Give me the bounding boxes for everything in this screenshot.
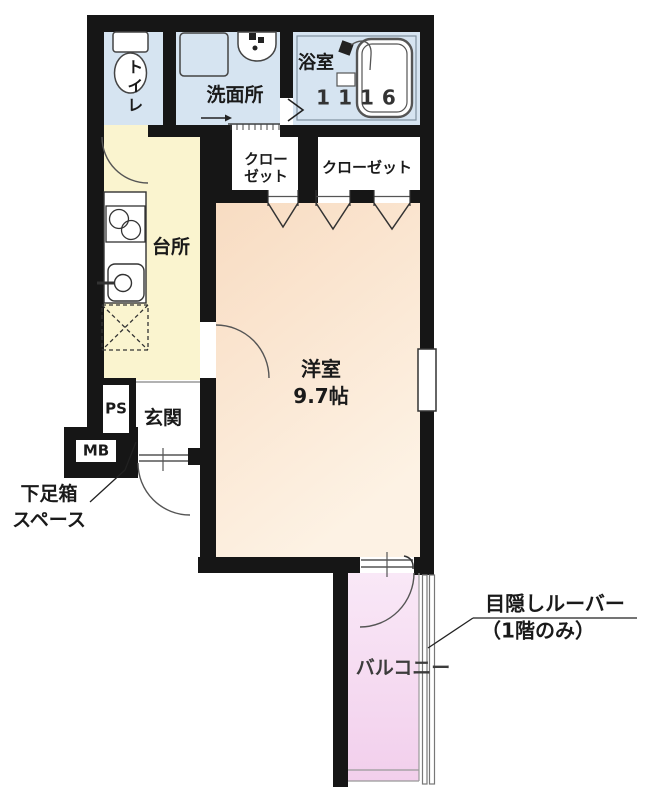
toilet-tank-icon xyxy=(113,32,148,52)
shoe-box-line2: スペース xyxy=(12,509,86,531)
kitchen-label: 台所 xyxy=(152,237,190,259)
balcony-label: バルコニー xyxy=(356,658,451,680)
pipe-shaft-label: PS xyxy=(105,400,127,417)
door-arc-entrance xyxy=(138,463,190,515)
window-icon xyxy=(418,349,436,411)
wall-kitchen-room-lower xyxy=(200,378,216,573)
wall-washroom-bathroom xyxy=(280,32,293,98)
closet-small-line1: クロー xyxy=(244,152,288,168)
bathroom-size-label: 1116 xyxy=(316,87,404,110)
wall-balcony-stub xyxy=(414,557,434,575)
wall-left xyxy=(87,15,104,435)
closet-small-line2: ゼット xyxy=(244,169,288,185)
western-room-size: 9.7帖 xyxy=(293,384,348,408)
wall-right-upper xyxy=(420,15,434,351)
wall-balcony-left xyxy=(333,557,348,787)
entrance-label: 玄関 xyxy=(144,408,182,430)
louver-annotation-line1: 目隠しルーバー xyxy=(485,593,625,616)
wall-between-closets xyxy=(298,137,318,190)
wall-closet-bottom-2 xyxy=(298,190,318,203)
wall-bathroom-bottom xyxy=(280,125,434,137)
washbasin-faucet-icon xyxy=(249,33,256,40)
closet-small-label: クロー ゼット xyxy=(244,152,288,185)
wall-right-lower xyxy=(420,409,434,573)
washbasin-faucet-dot xyxy=(258,37,264,43)
western-room-label: 洋室 9.7帖 xyxy=(293,356,348,410)
wall-top xyxy=(87,15,434,32)
floor-plan: トイレ 洗面所 浴室 1116 クロー ゼット クローゼット 台所 洋室 9.7… xyxy=(0,0,652,800)
wall-closet-bottom-3 xyxy=(350,190,374,203)
wall-closet-bottom-1 xyxy=(216,190,268,203)
wall-kitchen-room-upper xyxy=(200,203,216,322)
shoe-box-annotation: 下足箱 スペース xyxy=(12,481,86,533)
meter-box-label: MB xyxy=(83,442,109,459)
louver-annotation-line2: （1階のみ） xyxy=(481,620,595,643)
bathroom-label: 浴室 xyxy=(298,54,334,75)
washbasin-drain-dot xyxy=(253,46,258,51)
wall-entrance-stub xyxy=(188,448,216,465)
wall-closet-bottom-4 xyxy=(410,190,434,203)
western-room-name: 洋室 xyxy=(301,357,341,381)
wall-toilet-bottom xyxy=(148,125,176,137)
sink-drain xyxy=(115,275,132,292)
wall-washroom-bottom xyxy=(176,125,200,137)
bath-counter-icon xyxy=(337,73,355,86)
washroom-label: 洗面所 xyxy=(206,85,263,107)
shoe-box-line1: 下足箱 xyxy=(20,483,77,505)
closet-large-label: クローゼット xyxy=(322,159,412,176)
wall-toilet-washroom xyxy=(163,32,176,137)
toilet-label: トイレ xyxy=(124,59,142,116)
